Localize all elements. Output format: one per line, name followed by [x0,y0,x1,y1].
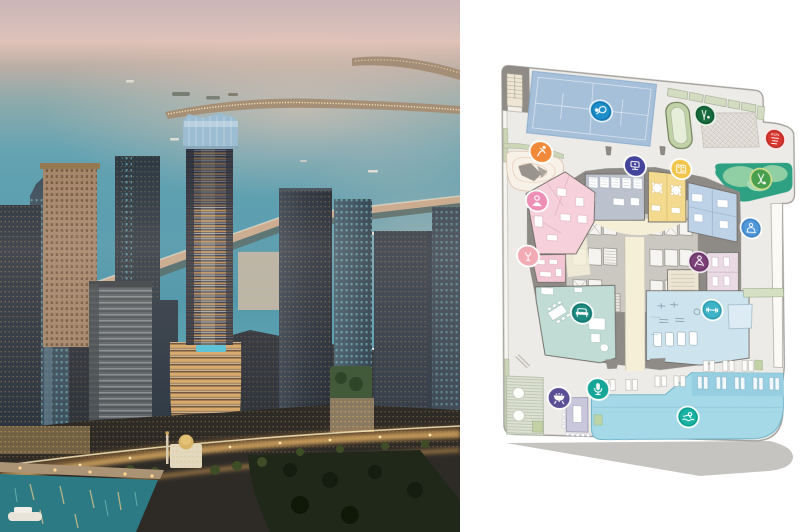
svg-text:RUN: RUN [771,132,779,137]
